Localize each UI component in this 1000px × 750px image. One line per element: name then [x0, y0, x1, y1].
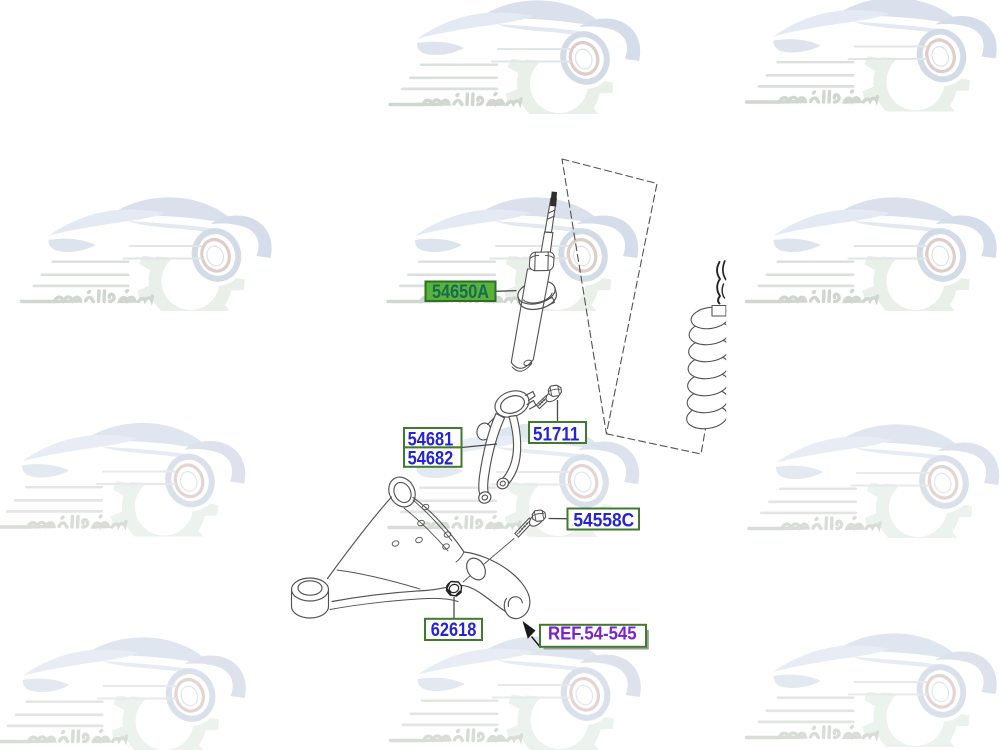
svg-text:54650A: 54650A — [432, 282, 489, 303]
svg-text:62618: 62618 — [431, 619, 477, 641]
svg-text:54558C: 54558C — [573, 509, 634, 531]
svg-text:54682: 54682 — [408, 448, 454, 470]
svg-text:51711: 51711 — [533, 424, 580, 446]
svg-text:REF.54-545: REF.54-545 — [548, 622, 637, 643]
